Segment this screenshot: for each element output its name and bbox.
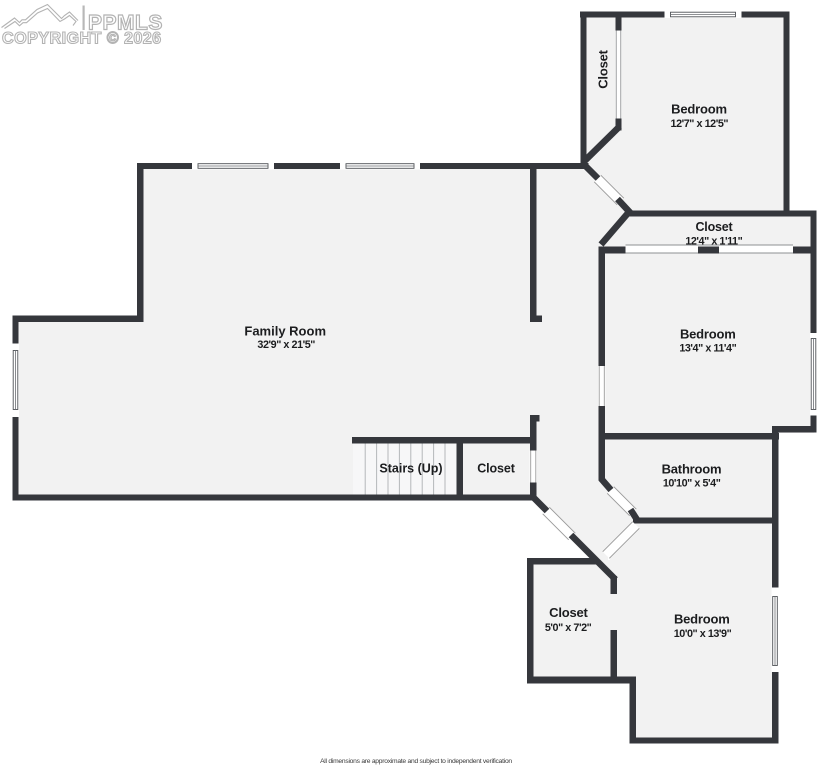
svg-text:Bedroom: Bedroom — [674, 612, 730, 627]
svg-text:Closet: Closet — [596, 49, 611, 88]
svg-text:5'0" x 7'2": 5'0" x 7'2" — [545, 622, 592, 634]
svg-text:Bedroom: Bedroom — [671, 102, 727, 117]
svg-text:COPYRIGHT © 2026: COPYRIGHT © 2026 — [2, 30, 162, 48]
svg-text:12'4" x 1'11": 12'4" x 1'11" — [685, 235, 742, 247]
svg-text:10'0" x 13'9": 10'0" x 13'9" — [674, 628, 732, 640]
svg-text:13'4" x 11'4": 13'4" x 11'4" — [679, 343, 736, 355]
svg-text:10'10" x 5'4": 10'10" x 5'4" — [663, 478, 721, 490]
svg-text:Bedroom: Bedroom — [680, 326, 736, 341]
svg-text:Family Room: Family Room — [244, 323, 326, 338]
svg-text:All dimensions are approximate: All dimensions are approximate and subje… — [320, 758, 512, 765]
svg-text:12'7" x 12'5": 12'7" x 12'5" — [671, 118, 729, 130]
svg-text:Stairs (Up): Stairs (Up) — [379, 462, 442, 476]
svg-text:Bathroom: Bathroom — [662, 462, 722, 477]
svg-text:Closet: Closet — [549, 605, 588, 620]
svg-text:Closet: Closet — [477, 462, 516, 476]
svg-text:Closet: Closet — [695, 220, 733, 234]
svg-text:32'9" x 21'5": 32'9" x 21'5" — [257, 339, 315, 351]
